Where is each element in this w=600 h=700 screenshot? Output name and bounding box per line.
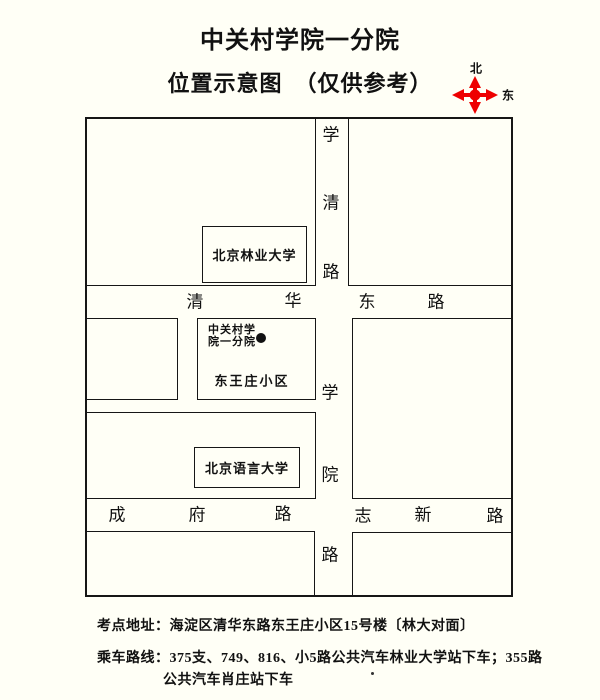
address-line: 考点地址：海淀区清华东路东王庄小区15号楼〔林大对面〕: [97, 615, 475, 635]
road-qinghuadong-char-2: 华: [285, 293, 302, 310]
road-qinghuadong-char-3: 东: [359, 294, 376, 311]
building-blcu-label: 北京语言大学: [205, 458, 289, 477]
college-location-dot: [256, 333, 266, 343]
road-xueyuan-char-3: 路: [322, 547, 339, 564]
college-label-line1: 中关村学: [208, 324, 256, 336]
compass-icon: [440, 50, 515, 120]
stray-mark: [371, 672, 374, 675]
road-qinghuadong-char-4: 路: [428, 294, 445, 311]
building-blcu-box: 北京语言大学: [194, 447, 300, 488]
college-label-line2: 院一分院: [208, 336, 256, 348]
road-xueyuan-char-1: 学: [322, 385, 339, 402]
road-xueqing-char-3: 路: [323, 264, 340, 281]
compass-east-label: 东: [502, 87, 514, 104]
road-chengfu-char-1: 成: [109, 507, 126, 524]
road-xueyuan-char-2: 院: [322, 467, 339, 484]
road-zhixin-char-3: 路: [487, 508, 504, 525]
road-zhixin-char-2: 新: [415, 507, 432, 524]
bus-route-line-1: 乘车路线：375支、749、816、小5路公共汽车林业大学站下车；355路: [97, 647, 543, 667]
road-qinghuadong-char-1: 清: [187, 294, 204, 311]
college-label: 中关村学 院一分院: [208, 324, 256, 348]
map-border: [85, 117, 513, 597]
road-chengfu-char-3: 路: [275, 506, 292, 523]
road-xueqing-char-1: 学: [323, 127, 340, 144]
dongwangzhuang-label: 东王庄小区: [214, 371, 289, 390]
building-forestry-label: 北京林业大学: [212, 245, 296, 264]
road-chengfu-char-2: 府: [189, 507, 206, 524]
bus-route-line-2: 公共汽车肖庄站下车: [163, 669, 294, 689]
road-xueqing-char-2: 清: [323, 195, 340, 212]
road-zhixin-char-1: 志: [355, 508, 372, 525]
building-forestry-box: 北京林业大学: [202, 226, 307, 283]
